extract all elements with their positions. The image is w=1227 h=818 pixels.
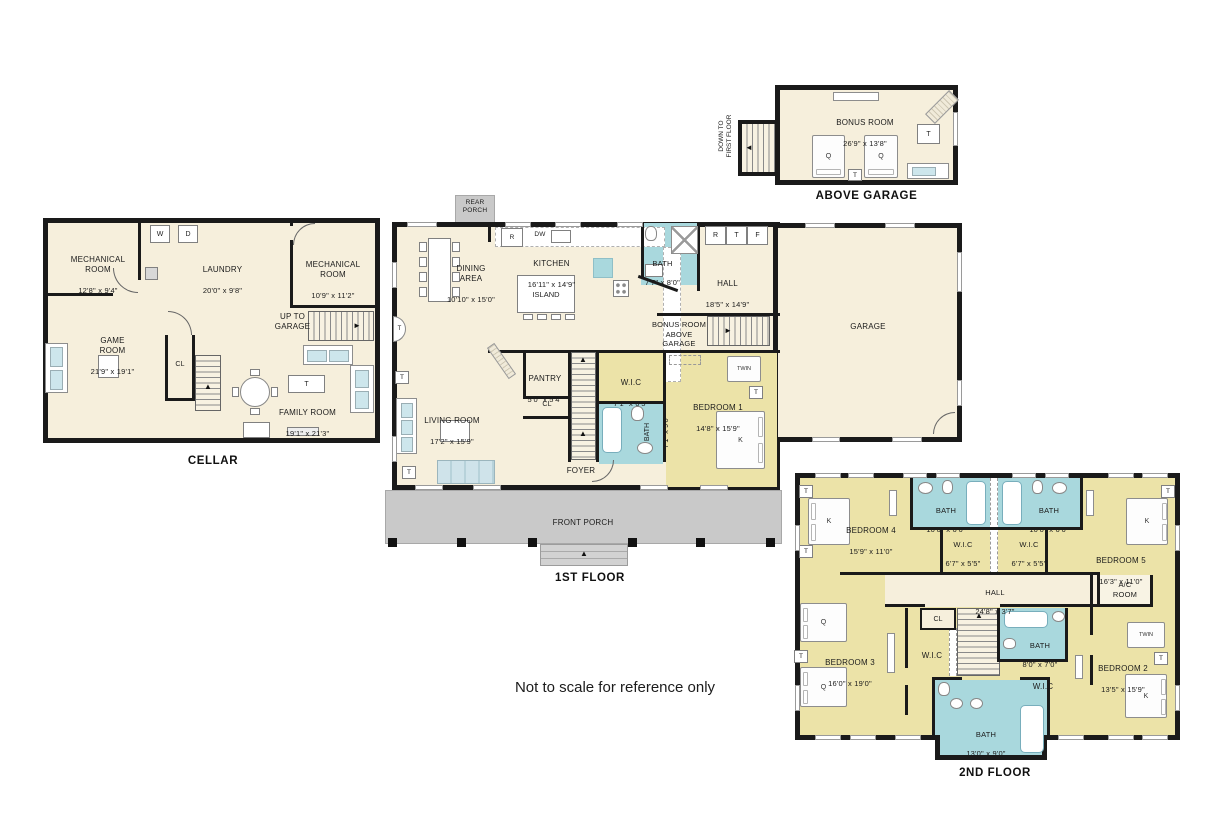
window (617, 222, 643, 227)
table-label: T (407, 469, 411, 476)
stairs-arrow: ► (723, 327, 733, 335)
room-dims: 24'8" x 3'7" (935, 607, 1055, 617)
room-name: BATH (956, 730, 1016, 740)
wic2-label: W.I.C (1013, 682, 1073, 692)
room-name: BEDROOM 4 (821, 526, 921, 536)
window (1175, 525, 1180, 551)
up-to-garage-label: UP TO GARAGE (265, 312, 320, 332)
wall (488, 350, 780, 353)
porch-post (457, 538, 466, 547)
chair (419, 272, 427, 282)
wall (905, 685, 908, 715)
sink-icon (918, 482, 933, 494)
table-label: T (398, 326, 402, 332)
room-name: GAME ROOM (65, 336, 160, 356)
toilet-icon (1032, 480, 1043, 494)
bed-label: TWIN (1139, 632, 1153, 638)
room-dims: 20'0" x 9'8" (175, 286, 270, 296)
sink-icon (1052, 482, 1067, 494)
wall (165, 398, 195, 401)
room-name: FAMILY ROOM (255, 408, 360, 418)
nightstand: T (799, 485, 813, 498)
plan-cellar: W D ► UP TO GARAGE CL ▲ T MECHANICAL ROO… (40, 215, 390, 475)
room-name: BATH (1010, 641, 1070, 651)
window (1175, 685, 1180, 711)
table: T (288, 375, 325, 393)
chair (271, 387, 278, 397)
room-dims: 6'7" x 5'5" (999, 559, 1059, 569)
room-dims: 6'7" x 5'5" (933, 559, 993, 569)
loveseat (303, 345, 353, 365)
window (815, 735, 841, 740)
window (1058, 735, 1084, 740)
window (505, 222, 531, 227)
window (1142, 473, 1168, 478)
front-porch (385, 490, 782, 544)
room-name: LIVING ROOM (402, 416, 502, 426)
table-label: T (400, 374, 404, 381)
steps-arrow: ▲ (579, 550, 589, 558)
bedroom2-label: BEDROOM 2 13'5" x 15'9" (1073, 654, 1173, 705)
wall (1080, 478, 1083, 530)
pillow (811, 503, 816, 520)
couch-cushion (50, 347, 63, 367)
family-room-label: FAMILY ROOM 19'1" x 21'3" (255, 398, 360, 449)
window (957, 252, 962, 292)
nightstand: T (1161, 485, 1175, 498)
table-label: T (853, 172, 857, 179)
stool (565, 314, 575, 320)
mechanical-room-1-label: MECHANICAL ROOM 12'8" x 9'4" (52, 245, 144, 306)
bed-label: Q (821, 619, 826, 626)
dishwasher-label: DW (531, 231, 549, 239)
living-room-label: LIVING ROOM 17'2" x 15'9" (402, 406, 502, 457)
pillow (816, 169, 841, 175)
kitchen-sink (551, 230, 571, 243)
room-name: BEDROOM 1 (673, 403, 763, 413)
front-porch-label: FRONT PORCH (483, 518, 683, 528)
toilet-icon (942, 480, 953, 494)
room-name: BATH (625, 259, 700, 269)
toilet-icon (938, 682, 950, 696)
pillow (1162, 503, 1167, 520)
window (895, 735, 921, 740)
dryer: D (178, 225, 198, 243)
disclaimer-note: Not to scale for reference only (420, 679, 810, 696)
table: T (402, 466, 416, 479)
bath-mid-label: BATH 8'0" x 7'0" (1010, 631, 1070, 679)
room-name: PANTRY (515, 374, 575, 384)
plan-title-second-floor: 2ND FLOOR (845, 767, 1145, 779)
room-dims: 16'0" x 19'0" (800, 679, 900, 689)
garage-door (812, 437, 840, 442)
window (953, 112, 958, 146)
rear-porch-label: REAR PORCH (455, 199, 495, 216)
couch-cushion (912, 167, 936, 176)
chair (419, 257, 427, 267)
sink-icon (970, 698, 983, 709)
game-room-label: GAME ROOM 21'9" x 19'1" (65, 326, 160, 387)
porch-post (766, 538, 775, 547)
table-label: T (304, 381, 308, 388)
table-t: T (726, 226, 747, 245)
stairs-direction-label: DOWN TO FIRST FLOOR (718, 91, 742, 181)
window (957, 380, 962, 406)
couch-cushion (50, 370, 63, 390)
window (1012, 473, 1036, 478)
stool (523, 314, 533, 320)
washer-label: W (157, 231, 164, 238)
room-name: BEDROOM 5 (1069, 556, 1173, 566)
room-dims: 10'10" x 15'0" (441, 295, 501, 305)
room-dims: 7'1" x 6'5" (599, 399, 663, 409)
window (1045, 473, 1069, 478)
window (903, 473, 927, 478)
fixture-label: T (734, 232, 738, 239)
couch-cushion (355, 370, 369, 388)
room-dims: 16'11" x 14'9" (509, 280, 594, 290)
couch (907, 163, 949, 179)
plan-title-first-floor: 1ST FLOOR (440, 572, 740, 584)
chair (452, 242, 460, 252)
wic-right-label: W.I.C 6'7" x 5'5" (999, 530, 1059, 578)
room-name: DINING AREA (441, 264, 501, 284)
ac-room-label: A/C ROOM (1100, 580, 1150, 599)
pillow (803, 608, 808, 622)
toilet-icon (645, 226, 657, 241)
laundry-label: LAUNDRY 20'0" x 9'8" (175, 255, 270, 306)
table-f: F (747, 226, 768, 245)
stairs-to-bonus-room (707, 316, 770, 346)
refrigerator: R (501, 228, 523, 247)
nightstand: T (799, 545, 813, 558)
closet-label: CL (523, 401, 571, 410)
pillow (803, 625, 808, 639)
room-dims: 17'2" x 15'9" (402, 437, 502, 447)
closet-label: CL (167, 361, 193, 370)
pillow (1162, 524, 1167, 541)
window (936, 473, 960, 478)
porch-post (528, 538, 537, 547)
garage-outline (773, 223, 962, 442)
window (1108, 473, 1134, 478)
wall (523, 416, 571, 419)
washer: W (150, 225, 170, 243)
room-dims: 15'9" x 11'0" (821, 547, 921, 557)
window (392, 262, 397, 288)
bathtub-icon (1020, 705, 1044, 753)
room-name: W.I.C (933, 540, 993, 550)
stairs-arrow: ▲ (578, 430, 588, 438)
pillow (868, 169, 894, 175)
fixture-label: F (755, 232, 759, 239)
porch-post (388, 538, 397, 547)
fixture-label: R (713, 232, 718, 239)
window (805, 223, 835, 228)
bonus-room-label: BONUS ROOM 26'9" x 13'8" (795, 108, 935, 159)
table-label: T (804, 548, 808, 555)
room-dims: 19'1" x 21'3" (255, 429, 360, 439)
couch-cushion (329, 350, 349, 362)
table-label: T (804, 488, 808, 495)
room-name: MECHANICAL ROOM (290, 260, 376, 280)
garage-label: GARAGE (783, 322, 953, 332)
window (795, 525, 800, 551)
wic-left-label: W.I.C 6'7" x 5'5" (933, 530, 993, 578)
room-name: BONUS ROOM (795, 118, 935, 128)
room-dims: 13'5" x 15'9" (1073, 685, 1173, 695)
room-dims: 10'9" x 11'2" (290, 291, 376, 301)
plan-title-cellar: CELLAR (40, 455, 386, 467)
kitchen-label: KITCHEN 16'11" x 14'9" (509, 249, 594, 300)
dresser (889, 490, 897, 516)
dryer-label: D (185, 231, 190, 238)
wall (932, 680, 935, 738)
chair (419, 242, 427, 252)
room-name: KITCHEN (509, 259, 594, 269)
room-dims: 14'8" x 15'9" (673, 424, 763, 434)
bed-twin: TWIN (1127, 622, 1165, 648)
window (850, 735, 876, 740)
room-dims: 26'9" x 13'8" (795, 139, 935, 149)
bed-label: K (1145, 518, 1150, 525)
hall-label: HALL 18'5" x 14'9" (685, 269, 770, 320)
window (848, 473, 874, 478)
rug (437, 460, 495, 484)
wall (932, 677, 962, 680)
room-name: HALL (685, 279, 770, 289)
window (1108, 735, 1134, 740)
wall (488, 222, 491, 242)
dresser (833, 92, 879, 101)
room-name: LAUNDRY (175, 265, 270, 275)
dresser (1086, 490, 1094, 516)
window (1142, 735, 1168, 740)
room-name: FOYER (541, 466, 621, 476)
pillow (811, 524, 816, 541)
plan-second-floor: ▲ CL (790, 470, 1190, 790)
window (407, 222, 437, 227)
refrigerator-label: R (510, 234, 515, 241)
room-dims: 12'8" x 9'4" (52, 286, 144, 296)
window (555, 222, 581, 227)
bed-twin: TWIN (727, 356, 761, 382)
window (885, 223, 915, 228)
room-name: BATH (1018, 506, 1080, 516)
dining-area-label: DINING AREA 10'10" x 15'0" (441, 254, 501, 315)
chair (419, 287, 427, 297)
table: T (395, 371, 409, 384)
table-label: T (1166, 488, 1170, 495)
couch-cushion (307, 350, 327, 362)
chair (250, 369, 260, 376)
table-small: T (848, 169, 862, 181)
floorplan-canvas: ◄ DOWN TO FIRST FLOOR Q Q T T BONUS ROOM… (0, 0, 1227, 818)
hall-label: HALL 24'8" x 3'7" (935, 578, 1055, 626)
wall (885, 604, 925, 607)
porch-post (696, 538, 705, 547)
wall (290, 218, 293, 226)
chair (232, 387, 239, 397)
stairs-arrow: ◄ (744, 144, 754, 152)
room-name: W.I.C (999, 540, 1059, 550)
room-dims: 8'0" x 7'0" (1010, 660, 1070, 670)
room-dims: 18'5" x 14'9" (685, 300, 770, 310)
closet-dashed (669, 355, 701, 365)
window (815, 473, 841, 478)
bath-bottom-label: BATH 13'0" x 9'0" (956, 720, 1016, 768)
room-name: MECHANICAL ROOM (52, 255, 144, 275)
table-r: R (705, 226, 726, 245)
room-name: BEDROOM 3 (800, 658, 900, 668)
room-name: W.I.C (599, 378, 663, 388)
room-name: BATH (915, 506, 977, 516)
utility-sink (145, 267, 158, 280)
stairs-arrow: ▲ (203, 383, 213, 391)
wic3-label: W.I.C (902, 651, 962, 661)
stairs-arrow: ▲ (578, 356, 588, 364)
bed-queen: Q (800, 603, 847, 642)
counter-corner (593, 258, 613, 278)
room-name: BEDROOM 2 (1073, 664, 1173, 674)
bedroom1-label: BEDROOM 1 14'8" x 15'9" (673, 393, 763, 444)
garage-door (892, 437, 922, 442)
bed-king: K (1126, 498, 1168, 545)
sink-icon (950, 698, 963, 709)
mechanical-room-2-label: MECHANICAL ROOM 10'9" x 11'2" (290, 250, 376, 311)
room-dims: 13'0" x 9'0" (956, 749, 1016, 759)
window (392, 436, 397, 462)
room-name: HALL (935, 588, 1055, 598)
stairs-arrow: ► (352, 322, 362, 330)
wic-label: W.I.C 7'1" x 6'5" (599, 368, 663, 419)
bed-label: TWIN (737, 366, 751, 372)
bedroom3-label: BEDROOM 3 16'0" x 19'0" (800, 648, 900, 699)
stool (551, 314, 561, 320)
pillow (758, 443, 763, 463)
porch-post (628, 538, 637, 547)
room-dims: 21'9" x 19'1" (65, 367, 160, 377)
stool (537, 314, 547, 320)
bedroom4-label: BEDROOM 4 15'9" x 11'0" (821, 516, 921, 567)
bonus-stairs-label: BONUS ROOM ABOVE GARAGE (643, 320, 715, 349)
